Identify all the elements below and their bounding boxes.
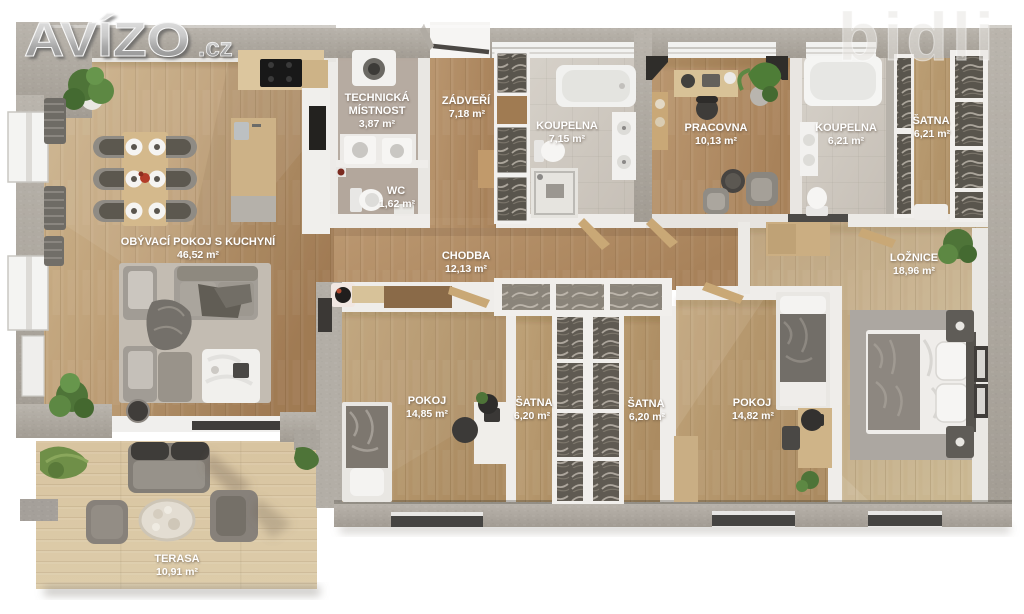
svg-text:ŠATNA: ŠATNA xyxy=(912,114,949,127)
svg-text:AVÍZO: AVÍZO xyxy=(24,14,190,68)
svg-text:LOŽNICE: LOŽNICE xyxy=(890,251,938,264)
svg-text:ŠATNA: ŠATNA xyxy=(627,397,664,410)
svg-text:1,62 m²: 1,62 m² xyxy=(379,198,416,210)
svg-text:6,21 m²: 6,21 m² xyxy=(828,135,865,147)
svg-text:CHODBA: CHODBA xyxy=(442,250,490,262)
svg-text:14,82 m²: 14,82 m² xyxy=(732,410,775,422)
svg-text:14,85 m²: 14,85 m² xyxy=(406,408,449,420)
svg-text:OBÝVACÍ POKOJ S KUCHYNÍ: OBÝVACÍ POKOJ S KUCHYNÍ xyxy=(121,235,276,248)
svg-text:TERASA: TERASA xyxy=(154,553,199,565)
svg-text:3,87 m²: 3,87 m² xyxy=(359,118,396,130)
svg-text:MÍSTNOST: MÍSTNOST xyxy=(349,104,406,117)
svg-text:bidli: bidli xyxy=(838,0,998,75)
svg-text:PRACOVNA: PRACOVNA xyxy=(685,122,748,134)
svg-text:12,13 m²: 12,13 m² xyxy=(445,263,488,275)
svg-text:7,18 m²: 7,18 m² xyxy=(449,108,486,120)
svg-text:ZÁDVEŘÍ: ZÁDVEŘÍ xyxy=(442,94,491,107)
svg-text:46,52 m²: 46,52 m² xyxy=(177,249,220,261)
svg-text:WC: WC xyxy=(387,185,405,197)
svg-text:6,20 m²: 6,20 m² xyxy=(514,410,551,422)
svg-text:TECHNICKÁ: TECHNICKÁ xyxy=(345,91,410,104)
svg-text:18,96 m²: 18,96 m² xyxy=(893,265,936,277)
svg-text:POKOJ: POKOJ xyxy=(733,397,772,409)
svg-text:6,21 m²: 6,21 m² xyxy=(914,128,951,140)
svg-text:POKOJ: POKOJ xyxy=(408,395,447,407)
svg-text:6,20 m²: 6,20 m² xyxy=(629,411,666,423)
svg-text:7,15 m²: 7,15 m² xyxy=(549,133,586,145)
svg-text:10,13 m²: 10,13 m² xyxy=(695,135,738,147)
svg-text:KOUPELNA: KOUPELNA xyxy=(536,120,598,132)
svg-text:ŠATNA: ŠATNA xyxy=(515,396,552,409)
svg-text:10,91 m²: 10,91 m² xyxy=(156,566,199,578)
svg-text:.cz: .cz xyxy=(198,32,233,62)
svg-text:KOUPELNA: KOUPELNA xyxy=(815,122,877,134)
